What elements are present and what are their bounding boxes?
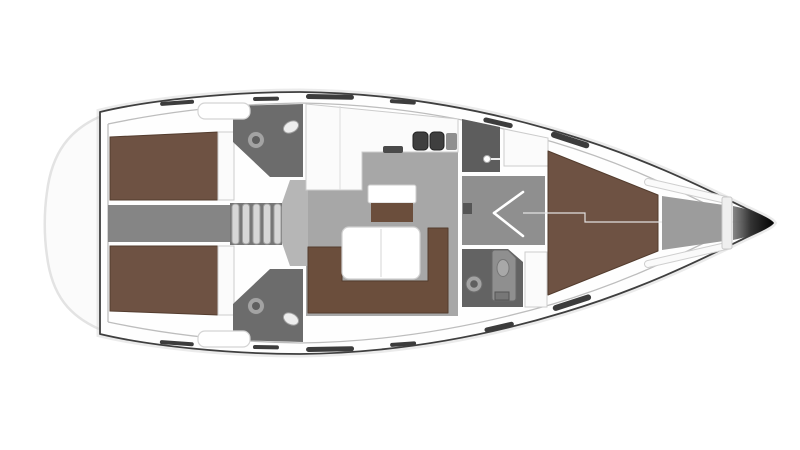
aft-port-headboard-cabinet [218, 132, 234, 200]
step [253, 204, 260, 244]
galley-faucet-icon [446, 133, 457, 150]
deck-hatch [198, 103, 250, 119]
step [264, 204, 271, 244]
toilet-bowl-icon [252, 302, 260, 310]
aft-corridor-floor [108, 205, 230, 242]
galley-sink-left-icon [413, 132, 428, 150]
toilet-bowl-icon [470, 280, 478, 288]
toilet-bowl-icon [252, 136, 260, 144]
saloon-sideboard-front [371, 203, 413, 222]
shower-head-icon [484, 156, 491, 163]
saloon-sideboard-top [368, 185, 416, 203]
yacht-plan-canvas [0, 0, 800, 450]
step [232, 204, 239, 244]
aft-cabin-starboard-berth [110, 246, 218, 315]
galley-sink-right-icon [430, 132, 444, 150]
aft-head-port-toilet [248, 132, 265, 149]
companionway-steps [232, 204, 281, 244]
anchor-locker-floor [662, 196, 724, 250]
vanity-basin-icon [497, 260, 509, 277]
hull-window-slit [306, 346, 354, 352]
step [274, 204, 281, 244]
shower-room-floor [462, 119, 500, 172]
forward-head-toilet [466, 276, 482, 292]
aft-starboard-headboard-cabinet [218, 246, 234, 315]
step [243, 204, 250, 244]
hull-window-slit [253, 345, 279, 349]
bow-bulkhead-bar [722, 197, 732, 249]
galley-stove-icon [383, 146, 403, 153]
hull-window-slit [306, 94, 354, 100]
vanity-grate-icon [495, 292, 509, 300]
fwd-corridor-floor [462, 176, 545, 245]
corridor-step [463, 203, 472, 214]
yacht-deck-plan [0, 0, 800, 450]
aft-head-starboard-toilet [248, 298, 265, 315]
aft-cabin-port-berth [110, 132, 218, 200]
deck-hatch [198, 331, 250, 347]
companionway-landing-floor [282, 180, 308, 266]
forward-cabin-bench [525, 252, 547, 307]
hull-window-slit [253, 97, 279, 101]
transom-platform [45, 117, 99, 329]
